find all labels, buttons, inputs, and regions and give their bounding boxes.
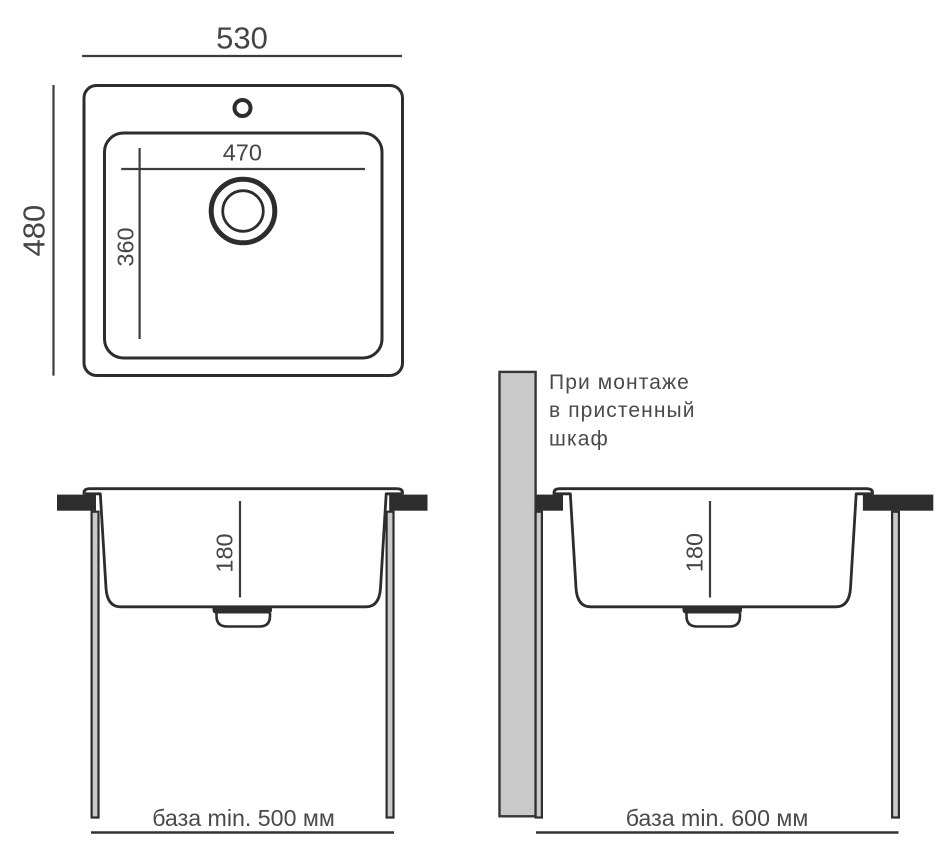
- svg-text:530: 530: [216, 21, 268, 56]
- svg-text:360: 360: [113, 227, 139, 266]
- svg-text:180: 180: [682, 533, 708, 572]
- svg-text:база min. 500 мм: база min. 500 мм: [152, 805, 335, 831]
- svg-text:При монтаже: При монтаже: [549, 371, 690, 394]
- svg-text:480: 480: [17, 205, 52, 257]
- svg-text:180: 180: [212, 533, 238, 572]
- svg-text:шкаф: шкаф: [549, 428, 609, 451]
- svg-text:470: 470: [223, 140, 262, 166]
- svg-text:база min. 600 мм: база min. 600 мм: [626, 805, 809, 831]
- svg-text:в пристенный: в пристенный: [549, 399, 696, 422]
